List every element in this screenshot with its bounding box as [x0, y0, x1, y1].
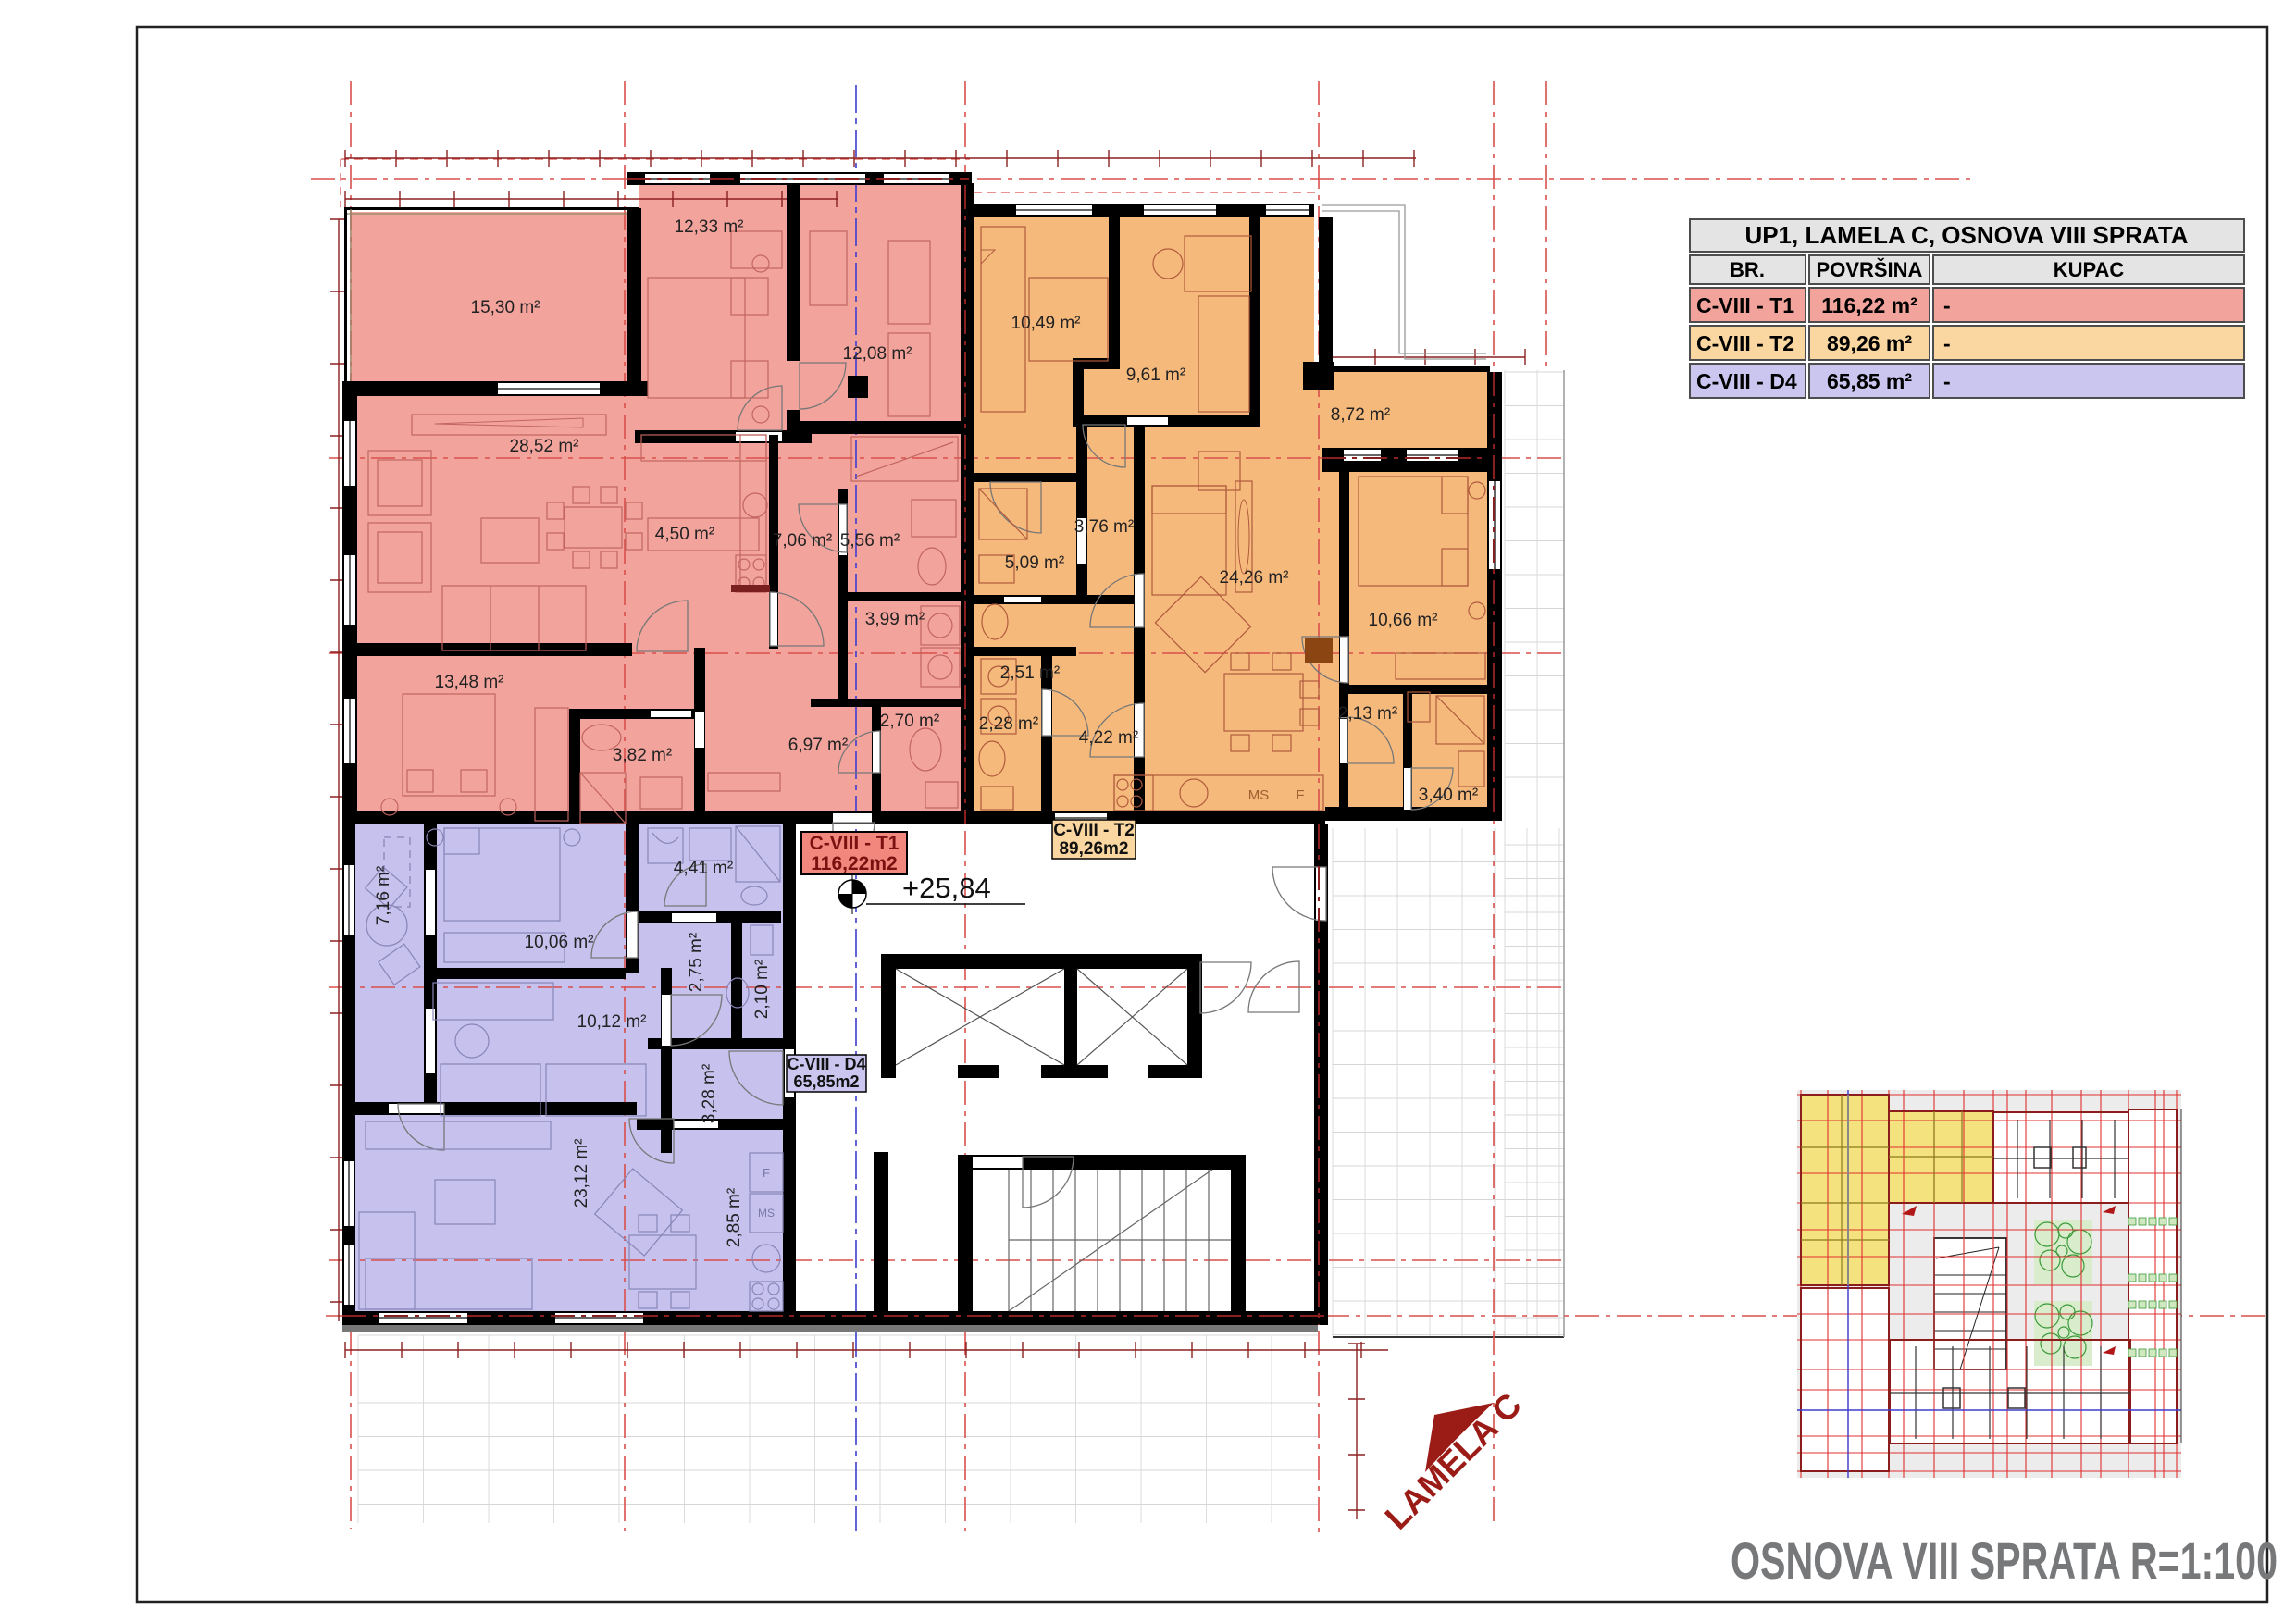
svg-text:65,85 m²: 65,85 m²	[1827, 369, 1912, 393]
svg-text:24,26 m²: 24,26 m²	[1220, 568, 1289, 588]
svg-text:3,82 m²: 3,82 m²	[613, 746, 672, 765]
svg-text:C-VIII - D4: C-VIII - D4	[787, 1055, 865, 1073]
svg-text:116,22m2: 116,22m2	[811, 853, 897, 874]
svg-text:4,50 m²: 4,50 m²	[655, 525, 714, 544]
svg-text:8,72 m²: 8,72 m²	[1331, 405, 1390, 425]
svg-text:10,12 m²: 10,12 m²	[577, 1012, 647, 1032]
svg-text:C-VIII - T2: C-VIII - T2	[1696, 331, 1794, 355]
svg-text:-: -	[1943, 369, 1951, 393]
svg-text:C-VIII - D4: C-VIII - D4	[1696, 369, 1797, 393]
svg-text:3,76 m²: 3,76 m²	[1074, 517, 1134, 537]
svg-text:15,30 m²: 15,30 m²	[471, 298, 540, 317]
svg-text:2,70 m²: 2,70 m²	[880, 712, 939, 731]
svg-text:12,33 m²: 12,33 m²	[675, 217, 744, 237]
svg-text:MS: MS	[758, 1207, 775, 1220]
svg-text:5,09 m²: 5,09 m²	[1005, 553, 1064, 573]
svg-text:89,26 m²: 89,26 m²	[1827, 331, 1912, 355]
svg-text:3,40 m²: 3,40 m²	[1419, 786, 1478, 805]
svg-text:C-VIII - T1: C-VIII - T1	[810, 833, 900, 854]
svg-text:6,97 m²: 6,97 m²	[788, 736, 848, 755]
svg-text:-: -	[1943, 293, 1951, 317]
svg-text:10,66 m²: 10,66 m²	[1369, 611, 1438, 630]
svg-text:-: -	[1943, 331, 1951, 355]
svg-text:F: F	[1296, 787, 1304, 803]
svg-text:28,52 m²: 28,52 m²	[510, 437, 579, 456]
svg-text:7,16 m²: 7,16 m²	[374, 866, 393, 925]
svg-text:65,85m2: 65,85m2	[793, 1072, 859, 1091]
svg-text:5,56 m²: 5,56 m²	[840, 531, 900, 551]
svg-text:OSNOVA VIII SPRATA R=1:100: OSNOVA VIII SPRATA R=1:100	[1731, 1531, 2277, 1590]
svg-text:UP1, LAMELA C, OSNOVA VIII SPR: UP1, LAMELA C, OSNOVA VIII SPRATA	[1744, 221, 2188, 249]
svg-text:MS: MS	[1248, 787, 1270, 803]
svg-text:2,85 m²: 2,85 m²	[725, 1188, 744, 1247]
svg-text:9,61 m²: 9,61 m²	[1126, 365, 1185, 385]
svg-text:2,75 m²: 2,75 m²	[687, 933, 706, 992]
svg-text:C-VIII - T1: C-VIII - T1	[1696, 293, 1794, 317]
svg-text:POVRŠINA: POVRŠINA	[1817, 258, 1923, 281]
svg-text:10,49 m²: 10,49 m²	[1011, 314, 1081, 333]
svg-text:12,08 m²: 12,08 m²	[843, 344, 912, 364]
svg-text:+25,84: +25,84	[902, 872, 991, 904]
svg-text:2,51 m²: 2,51 m²	[1000, 663, 1060, 683]
svg-text:4,41 m²: 4,41 m²	[674, 859, 733, 878]
svg-text:3,28 m²: 3,28 m²	[700, 1064, 719, 1123]
svg-text:23,12 m²: 23,12 m²	[572, 1139, 591, 1208]
svg-text:2,10 m²: 2,10 m²	[752, 960, 772, 1019]
svg-text:13,48 m²: 13,48 m²	[435, 673, 504, 692]
svg-text:F: F	[763, 1166, 770, 1180]
svg-text:3,99 m²: 3,99 m²	[865, 610, 925, 629]
svg-text:7,06 m²: 7,06 m²	[773, 531, 832, 551]
svg-text:C-VIII - T2: C-VIII - T2	[1053, 821, 1135, 840]
svg-text:2,13 m²: 2,13 m²	[1338, 704, 1397, 724]
svg-text:10,06 m²: 10,06 m²	[525, 933, 594, 952]
svg-text:4,22 m²: 4,22 m²	[1079, 728, 1138, 748]
svg-text:89,26m2: 89,26m2	[1059, 839, 1128, 859]
svg-text:2,28 m²: 2,28 m²	[979, 714, 1038, 734]
svg-text:KUPAC: KUPAC	[2054, 258, 2125, 281]
svg-text:BR.: BR.	[1730, 258, 1765, 281]
svg-text:116,22 m²: 116,22 m²	[1821, 293, 1917, 317]
